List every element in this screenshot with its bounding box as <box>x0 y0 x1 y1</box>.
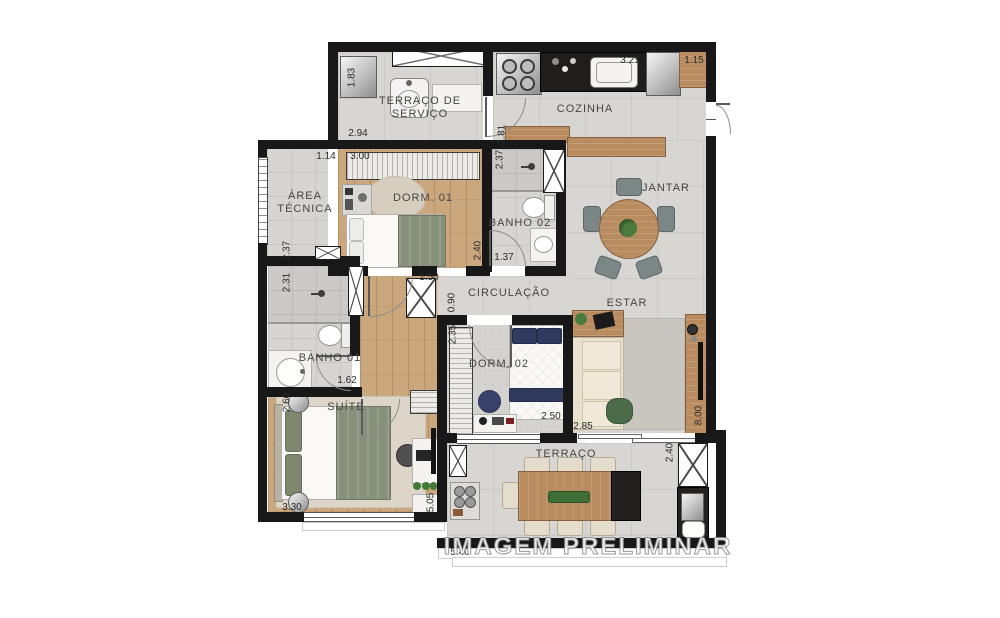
desk-items <box>345 199 353 210</box>
shaft-banho02 <box>543 149 565 193</box>
room-label-cozinha: COZINHA <box>545 103 625 116</box>
table-plant <box>619 219 637 237</box>
pillow <box>349 218 364 241</box>
shaft-terraco-left <box>449 445 467 477</box>
plant-estar <box>575 313 587 325</box>
dim-banho02-height: 2.37 <box>495 143 506 177</box>
dim-suite-width: 3.30 <box>275 502 309 513</box>
terrace-chair <box>502 482 519 509</box>
shower-glass <box>268 322 350 324</box>
stove <box>496 53 542 95</box>
decor-icon <box>691 336 697 342</box>
wall <box>328 42 716 52</box>
faucet-banho01 <box>300 369 305 374</box>
room-label-dorm02: DORM. 02 <box>461 358 537 371</box>
burner-icon <box>502 59 517 74</box>
dim-ts-width: 2.94 <box>341 128 375 139</box>
shower-head-icon <box>528 163 535 170</box>
wall <box>258 149 267 157</box>
pouf-dorm02 <box>478 390 501 413</box>
grill-burner <box>465 486 476 497</box>
room-label-circulacao: CIRCULAÇÃO <box>464 287 554 300</box>
pouf-estar <box>606 398 633 424</box>
dim-suite-height: 2.60 <box>282 386 293 420</box>
dim-banho02-width: 1.37 <box>487 252 521 263</box>
wall <box>437 443 447 522</box>
room-label-estar: ESTAR <box>597 297 657 310</box>
room-label-terraco: TERRAÇO <box>531 448 601 461</box>
fridge <box>646 52 681 96</box>
table-end-dark <box>611 471 641 521</box>
dim-dorm02-height: 2.35 <box>448 318 459 352</box>
dorm02-window <box>457 434 540 444</box>
wall <box>328 42 338 148</box>
blanket-dorm01 <box>398 215 446 267</box>
pillow-navy <box>512 328 537 344</box>
dim-cozinha-width-1: 3.21 <box>613 55 647 66</box>
sliding-door <box>577 433 695 443</box>
kitchen-cabinet <box>679 46 708 88</box>
shower-arm <box>311 293 319 295</box>
room-label-dorm01: DORM. 01 <box>385 192 461 205</box>
dim-estar-width: 2.85 <box>566 421 600 432</box>
room-label-area-tecnica: ÁREA TÉCNICA <box>270 190 340 216</box>
dim-dorm02-width: 2.50 <box>534 411 568 422</box>
plant-icon <box>413 482 421 490</box>
dim-area-tecnica-width: 1.14 <box>309 151 343 162</box>
dim-estar-height: 8.00 <box>694 399 705 433</box>
wall <box>706 136 716 440</box>
wall <box>350 314 360 356</box>
basin-banho02 <box>534 236 553 253</box>
sofa-cushion <box>582 341 621 370</box>
pillow-navy <box>537 328 562 344</box>
tv-suite <box>431 428 436 474</box>
desk-items <box>345 188 353 195</box>
wall <box>706 42 716 102</box>
shower-head-icon <box>318 290 325 297</box>
counter-decor <box>552 58 559 65</box>
room-label-terraco-servico: TERRAÇO DE SERVIÇO <box>375 95 465 121</box>
louver-window <box>258 157 268 245</box>
laptop-suite <box>416 450 431 461</box>
shaft-area-tecnica <box>315 246 341 260</box>
dining-chair <box>657 206 675 232</box>
wall <box>695 433 716 443</box>
terrace-sink-metal <box>681 493 704 521</box>
desk-items <box>479 417 487 425</box>
wall <box>466 266 490 276</box>
wall <box>437 433 457 443</box>
desk-items <box>492 417 504 425</box>
dim-ts-height: 1.83 <box>347 61 358 95</box>
speaker-icon <box>687 324 698 335</box>
dim-dorm01-width: 3.00 <box>343 151 377 162</box>
dim-circ-width: 1.50 <box>412 272 446 283</box>
dim-suite-side: 5.05 <box>426 486 437 520</box>
wall <box>540 433 577 443</box>
dim-terraco-height: 2.40 <box>665 436 676 470</box>
island-counter <box>567 137 666 157</box>
room-label-jantar: JANTAR <box>631 182 701 195</box>
watermark-text: IMAGEM PRELIMINAR <box>428 533 748 561</box>
burner-icon <box>520 59 535 74</box>
desk-items <box>506 418 514 424</box>
burner-icon <box>502 76 517 91</box>
dim-banho01-height: 2.31 <box>282 266 293 300</box>
shower-arm <box>521 166 529 168</box>
laundry-faucet <box>406 80 412 86</box>
wall <box>716 440 726 548</box>
burner-icon <box>520 76 535 91</box>
shaft-terraco-right <box>678 443 708 487</box>
room-label-suite: SUÍTE <box>316 401 376 414</box>
wall <box>525 266 566 276</box>
desk-chair-dorm01 <box>358 193 367 202</box>
tv-estar <box>698 342 703 400</box>
floor-plan: TERRAÇO DE SERVIÇO COZINHA JANTAR ÁREA T… <box>0 0 1000 618</box>
entry-door-arc <box>716 105 731 134</box>
room-label-banho02: BANHO 02 <box>481 217 559 230</box>
table-plant-strip <box>548 491 590 503</box>
wall <box>258 243 267 522</box>
grill-item <box>453 509 463 516</box>
toilet-banho01 <box>318 325 342 346</box>
suite-window <box>304 512 414 522</box>
grill-burner <box>454 486 465 497</box>
wall <box>258 256 360 266</box>
dim-circ-height: 0.90 <box>447 286 458 320</box>
wall <box>328 140 566 149</box>
toilet-banho02 <box>522 197 546 218</box>
dim-dorm01-height: 2.40 <box>473 234 484 268</box>
room-label-banho01: BANHO 01 <box>291 352 369 365</box>
counter-decor <box>562 66 568 72</box>
dim-banho01-width: 1.62 <box>330 375 364 386</box>
bed-runner-navy <box>509 388 565 402</box>
wall <box>483 42 493 96</box>
wardrobe-suite <box>410 390 439 414</box>
counter-decor <box>570 58 576 64</box>
pillow-sage <box>285 454 302 496</box>
grill-burner <box>465 497 476 508</box>
wall <box>258 512 304 522</box>
window-sill <box>302 522 445 531</box>
grill-burner <box>454 497 465 508</box>
dim-cozinha-width-2: 1.15 <box>677 55 711 66</box>
wall <box>437 315 447 443</box>
entry-door-gap <box>706 102 716 136</box>
dim-area-tecnica-height: 2.37 <box>282 234 293 268</box>
sofa-cushion <box>582 371 621 400</box>
shaft-banho01 <box>348 266 364 316</box>
wall <box>258 140 338 149</box>
